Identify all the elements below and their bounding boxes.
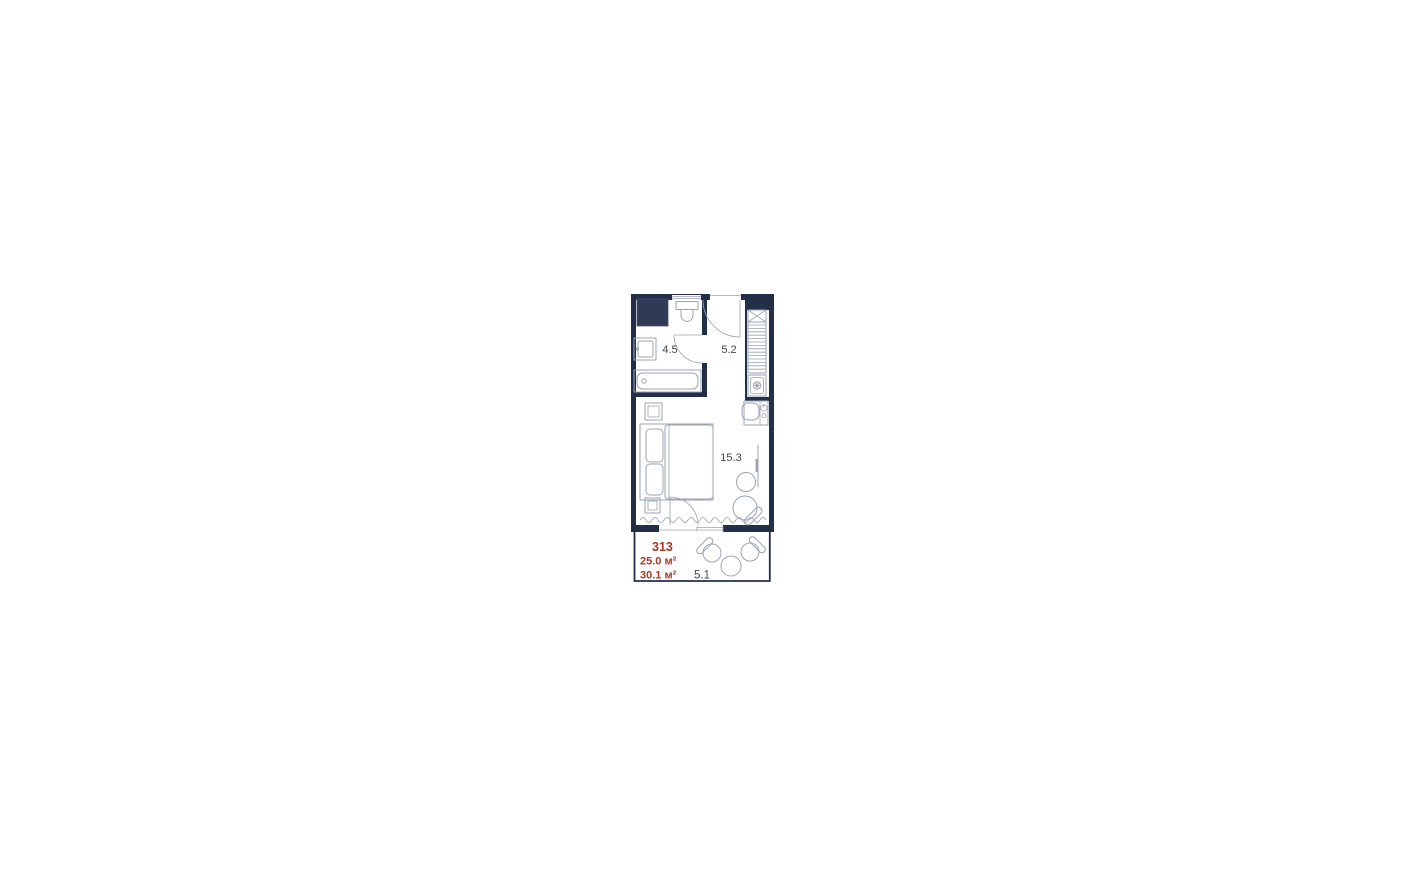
unit-number: 313 (652, 540, 673, 554)
tv (756, 445, 759, 487)
balcony-window-frame (659, 526, 723, 532)
unit-area-total: 30.1 м² (640, 570, 677, 582)
washing-machine (748, 375, 766, 396)
balcony-chair-right (741, 535, 767, 561)
balcony-table (721, 556, 741, 576)
vent-grille (672, 295, 701, 300)
walls (631, 294, 774, 532)
side-table (737, 473, 756, 492)
toilet (676, 302, 698, 322)
bathtub (634, 370, 701, 392)
living-area-label: 15.3 (720, 452, 741, 464)
unit-area-main: 25.0 м² (640, 556, 677, 568)
kitchenette (742, 401, 768, 425)
washer-drum-icon (753, 382, 761, 390)
washbasin (634, 338, 656, 360)
balcony-door (670, 497, 698, 525)
entrance-door (703, 296, 741, 338)
page: { "unit": { "number": "313", "area_main"… (0, 0, 1406, 880)
bed (640, 424, 713, 500)
balcony-area-label: 5.1 (694, 570, 710, 582)
unit-floor-plan[interactable]: 4.5 5.2 15.3 5.1 313 25.0 м² 30.1 м² (631, 294, 774, 585)
wardrobe (748, 322, 766, 373)
ventilation-shaft (637, 299, 668, 326)
duct-box (748, 310, 766, 322)
nightstand-top (645, 403, 662, 420)
bathroom-door (674, 335, 702, 363)
bathroom-area-label: 4.5 (662, 344, 677, 356)
hallway-area-label: 5.2 (721, 344, 736, 356)
balcony-chair-left (695, 536, 721, 562)
